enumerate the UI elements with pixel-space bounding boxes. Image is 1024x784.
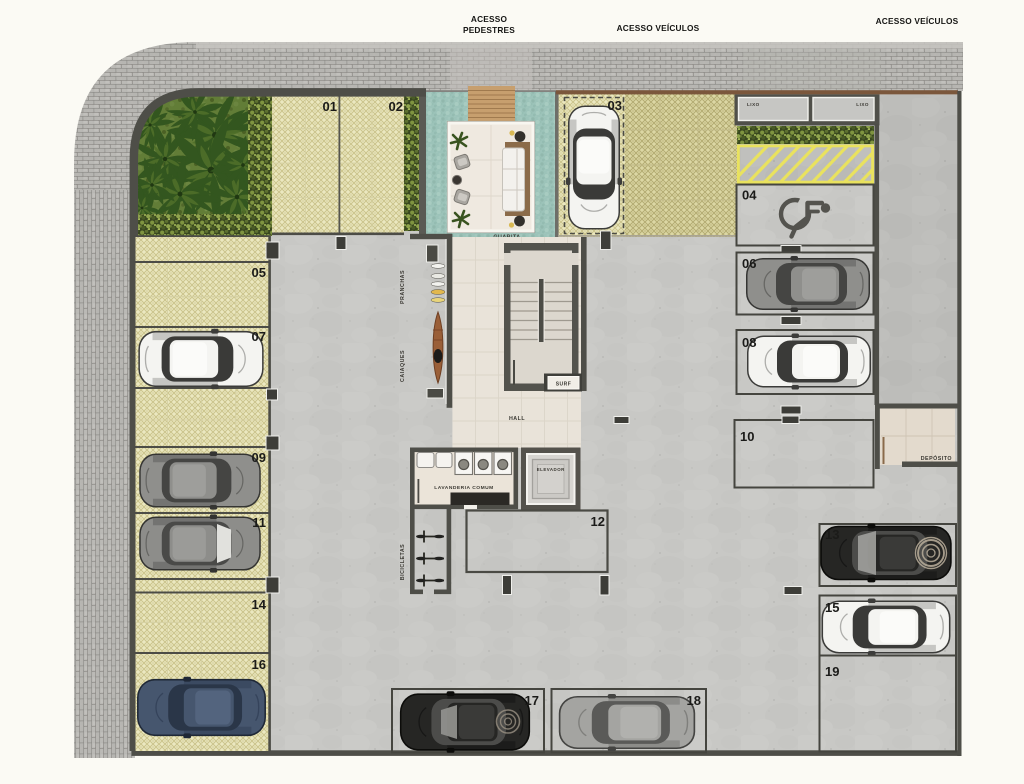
svg-text:17: 17 bbox=[525, 693, 539, 708]
svg-text:DEPÓSITO: DEPÓSITO bbox=[921, 454, 952, 462]
svg-text:LIXO: LIXO bbox=[856, 102, 869, 107]
svg-text:01: 01 bbox=[323, 99, 337, 114]
svg-text:15: 15 bbox=[825, 600, 839, 615]
svg-text:03: 03 bbox=[608, 98, 622, 113]
svg-text:13: 13 bbox=[825, 527, 839, 542]
svg-text:06: 06 bbox=[742, 256, 756, 271]
svg-text:HALL: HALL bbox=[509, 416, 525, 422]
svg-text:LAVANDERIA COMUM: LAVANDERIA COMUM bbox=[434, 485, 494, 491]
svg-text:12: 12 bbox=[591, 514, 605, 529]
svg-text:04: 04 bbox=[742, 188, 757, 203]
svg-text:ACESSO VEÍCULOS: ACESSO VEÍCULOS bbox=[617, 23, 700, 33]
svg-text:ELEVADOR: ELEVADOR bbox=[537, 467, 565, 472]
svg-text:14: 14 bbox=[252, 597, 267, 612]
svg-text:ACESSO: ACESSO bbox=[471, 14, 508, 24]
svg-text:BICICLETAS: BICICLETAS bbox=[400, 544, 406, 580]
svg-text:08: 08 bbox=[742, 335, 756, 350]
svg-text:PRANCHAS: PRANCHAS bbox=[400, 270, 406, 304]
svg-text:18: 18 bbox=[687, 693, 701, 708]
svg-text:10: 10 bbox=[740, 429, 754, 444]
svg-text:16: 16 bbox=[252, 657, 266, 672]
svg-text:07: 07 bbox=[252, 329, 266, 344]
svg-text:CAIAQUES: CAIAQUES bbox=[400, 350, 406, 382]
svg-text:PEDESTRES: PEDESTRES bbox=[463, 25, 515, 35]
svg-text:SURF: SURF bbox=[556, 382, 572, 388]
svg-text:19: 19 bbox=[825, 664, 839, 679]
svg-text:LIXO: LIXO bbox=[747, 102, 760, 107]
svg-text:02: 02 bbox=[389, 99, 403, 114]
svg-text:ACESSO VEÍCULOS: ACESSO VEÍCULOS bbox=[876, 16, 959, 26]
svg-text:11: 11 bbox=[252, 515, 266, 530]
svg-text:09: 09 bbox=[252, 450, 266, 465]
svg-text:05: 05 bbox=[252, 265, 266, 280]
